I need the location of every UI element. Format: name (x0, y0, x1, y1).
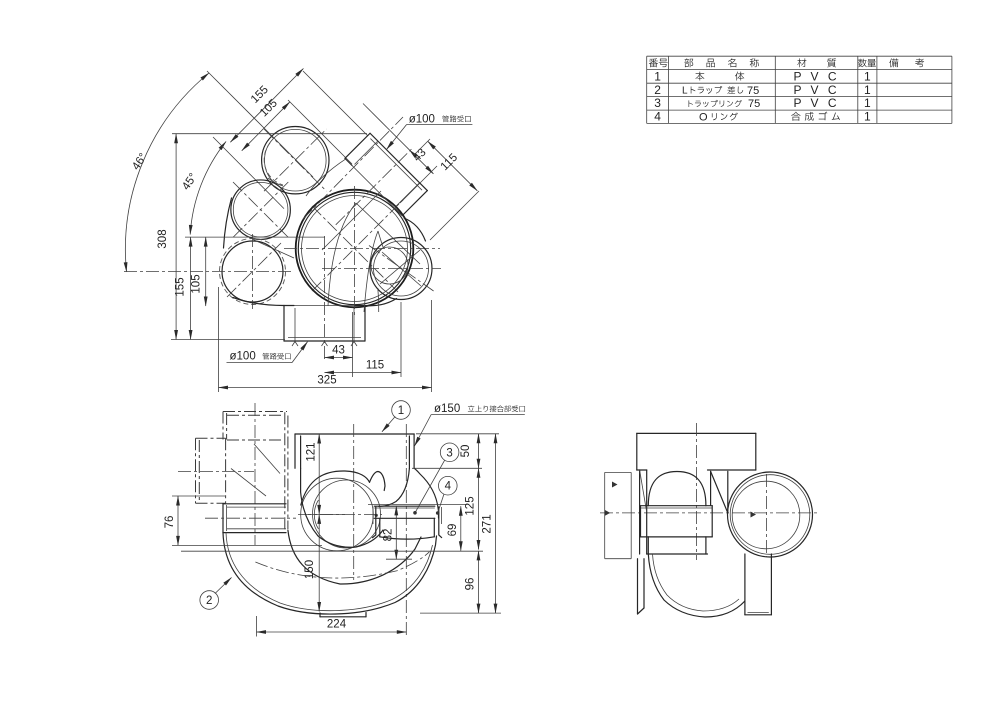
svg-text:121: 121 (306, 442, 318, 461)
svg-text:P V C: P V C (793, 96, 839, 110)
svg-text:50: 50 (460, 445, 472, 458)
svg-text:1: 1 (654, 69, 661, 83)
svg-text:O: O (699, 112, 708, 124)
svg-text:4: 4 (654, 110, 661, 124)
svg-text:3: 3 (446, 447, 452, 459)
svg-text:1: 1 (864, 69, 871, 83)
svg-text:1: 1 (864, 96, 871, 110)
svg-text:75: 75 (747, 85, 759, 97)
svg-text:43: 43 (332, 345, 345, 357)
svg-text:82: 82 (383, 529, 395, 542)
svg-text:224: 224 (327, 619, 347, 631)
svg-text:105: 105 (191, 274, 203, 293)
svg-text:1: 1 (864, 110, 871, 124)
svg-text:2: 2 (206, 595, 212, 607)
svg-text:46°: 46° (130, 151, 150, 172)
svg-text:115: 115 (366, 360, 384, 372)
svg-text:150: 150 (304, 560, 316, 579)
svg-text:308: 308 (157, 229, 169, 248)
svg-text:ø100: ø100 (230, 351, 256, 363)
svg-text:271: 271 (482, 514, 494, 533)
svg-text:P V C: P V C (793, 83, 839, 97)
svg-text:69: 69 (447, 524, 459, 537)
svg-text:3: 3 (654, 96, 661, 110)
svg-text:2: 2 (654, 83, 661, 97)
svg-text:96: 96 (464, 578, 476, 591)
svg-text:ø100: ø100 (409, 113, 435, 125)
svg-text:76: 76 (164, 516, 176, 529)
svg-text:L: L (682, 85, 688, 96)
svg-text:125: 125 (464, 496, 476, 515)
svg-text:4: 4 (445, 481, 452, 493)
svg-text:P V C: P V C (793, 69, 839, 83)
svg-text:75: 75 (748, 98, 760, 110)
svg-text:1: 1 (398, 405, 404, 417)
svg-text:ø150: ø150 (434, 403, 460, 415)
svg-text:45°: 45° (180, 171, 200, 192)
svg-text:1: 1 (864, 83, 871, 97)
svg-text:155: 155 (175, 277, 187, 296)
svg-text:325: 325 (317, 375, 336, 387)
